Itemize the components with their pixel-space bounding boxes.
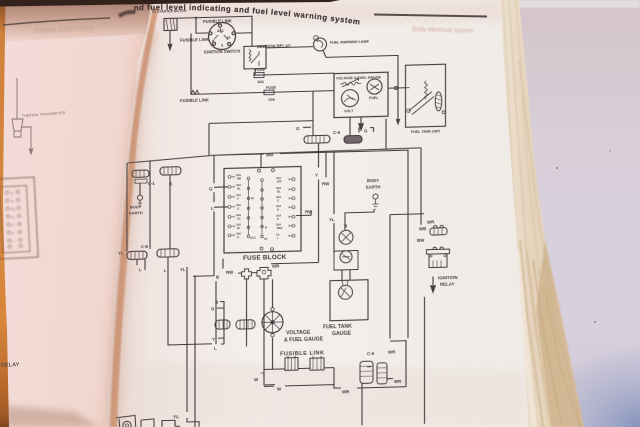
svg-text:RW: RW [305, 209, 313, 214]
svg-text:YL: YL [173, 414, 179, 420]
svg-text:B: B [265, 225, 267, 229]
svg-text:RW: RW [322, 181, 330, 186]
svg-text:WR: WR [388, 349, 396, 354]
svg-text:VOLTAGE: VOLTAGE [286, 330, 311, 337]
svg-text:IGNITION: IGNITION [438, 275, 458, 281]
svg-text:HL: HL [237, 186, 241, 190]
svg-text:GAUGE: GAUGE [332, 331, 352, 338]
svg-text:WR: WR [427, 219, 435, 224]
svg-text:FUSE BLOCK: FUSE BLOCK [243, 254, 287, 262]
svg-text:RELAY: RELAY [1, 362, 20, 369]
svg-text:G: G [237, 206, 239, 210]
svg-text:IGNITION RELAY: IGNITION RELAY [257, 43, 291, 49]
svg-text:L: L [211, 206, 214, 211]
svg-text:H: H [277, 207, 279, 211]
svg-text:A1: A1 [237, 216, 241, 220]
svg-text:IG: IG [227, 36, 231, 40]
svg-text:IGNITION SWITCH: IGNITION SWITCH [204, 49, 240, 55]
svg-text:5Y: 5Y [11, 223, 15, 227]
svg-text:BODY: BODY [367, 178, 379, 183]
svg-text:W: W [237, 226, 240, 230]
svg-text:S: S [277, 217, 279, 221]
svg-text:ST: ST [264, 237, 268, 241]
svg-text:ACC: ACC [217, 29, 225, 33]
svg-text:BW: BW [417, 238, 425, 243]
svg-text:DL: DL [277, 189, 281, 193]
svg-text:FUSE: FUSE [255, 68, 266, 72]
svg-text:FUSIBLE LINK: FUSIBLE LINK [180, 97, 209, 103]
svg-text:EARTH: EARTH [366, 184, 380, 189]
svg-text:C-8: C-8 [141, 244, 148, 249]
svg-text:YL: YL [329, 217, 335, 222]
svg-text:C-1: C-1 [148, 181, 155, 186]
svg-text:FUSIBLE LINK: FUSIBLE LINK [180, 37, 209, 43]
svg-text:FUSIBLE LINK: FUSIBLE LINK [280, 350, 325, 357]
svg-text:RW: RW [226, 270, 234, 275]
svg-text:G: G [209, 186, 213, 191]
svg-text:YL: YL [180, 267, 186, 272]
svg-text:WR: WR [342, 389, 350, 394]
svg-text:WB: WB [266, 152, 273, 157]
svg-text:ACC: ACC [250, 236, 256, 240]
svg-text:WR: WR [272, 264, 280, 269]
svg-text:G: G [211, 306, 215, 311]
svg-text:C: C [277, 198, 279, 202]
svg-text:L: L [139, 267, 142, 272]
svg-text:NR: NR [237, 176, 241, 180]
svg-text:IFP: IFP [277, 179, 281, 183]
svg-text:G: G [296, 126, 300, 131]
svg-text:F: F [237, 196, 239, 200]
svg-text:EARTH: EARTH [129, 210, 143, 215]
svg-text:4G: 4G [11, 215, 15, 219]
svg-text:C-9: C-9 [367, 351, 375, 356]
svg-text:FUEL: FUEL [369, 96, 379, 100]
svg-text:A: A [237, 235, 239, 239]
svg-text:Y: Y [212, 337, 215, 342]
svg-text:2B: 2B [10, 199, 14, 203]
svg-text:S: S [221, 44, 223, 48]
svg-text:& FUEL GAUGE: & FUEL GAUGE [284, 336, 324, 343]
svg-text:B: B [216, 275, 219, 280]
svg-text:1R: 1R [10, 191, 14, 195]
svg-text:10A: 10A [268, 98, 275, 102]
svg-text:G: G [364, 128, 368, 133]
svg-text:10A: 10A [257, 80, 264, 84]
svg-text:FUEL TANK: FUEL TANK [323, 324, 352, 331]
svg-text:IG: IG [251, 196, 254, 200]
svg-text:FUSE: FUSE [266, 86, 277, 90]
svg-text:L: L [277, 236, 279, 240]
svg-text:L: L [214, 346, 217, 351]
svg-text:FUEL TANK UNIT: FUEL TANK UNIT [411, 129, 441, 134]
svg-text:WB: WB [419, 226, 426, 231]
svg-text:Y: Y [315, 173, 318, 178]
svg-text:VOLT: VOLT [344, 109, 354, 113]
svg-text:C-6: C-6 [333, 130, 341, 135]
svg-text:BODY: BODY [130, 204, 142, 209]
svg-text:WR: WR [394, 379, 402, 384]
svg-text:L: L [164, 268, 167, 273]
svg-text:DEF: DEF [277, 226, 283, 230]
svg-text:RELAY: RELAY [440, 281, 455, 286]
